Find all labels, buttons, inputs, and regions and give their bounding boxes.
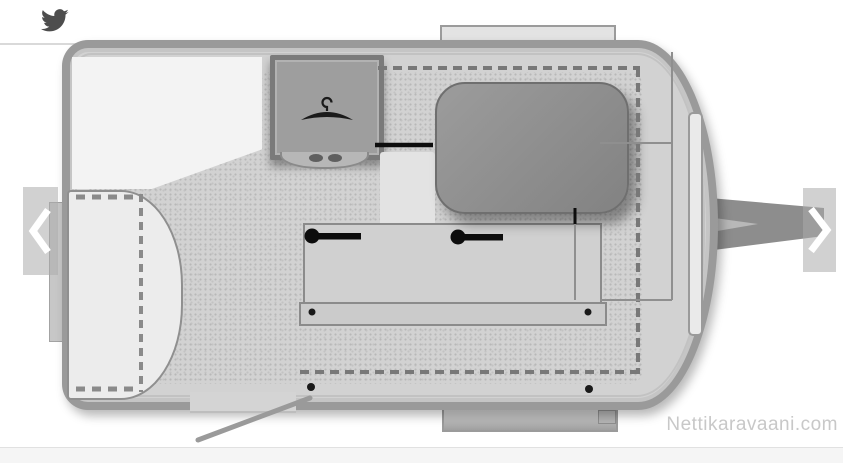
watermark: Nettikaravaani.com bbox=[598, 414, 838, 436]
door-opening bbox=[190, 392, 296, 413]
twitter-share-button[interactable] bbox=[24, 0, 84, 42]
bench-front-panel bbox=[299, 302, 607, 326]
next-image-button[interactable] bbox=[803, 188, 836, 272]
chevron-right-icon bbox=[803, 188, 836, 272]
image-gallery-page: Nettikaravaani.com bbox=[0, 0, 843, 463]
twitter-bird-icon bbox=[39, 9, 69, 34]
clothes-hanger-icon bbox=[296, 91, 358, 125]
side-unit bbox=[67, 190, 183, 400]
kitchen-counter bbox=[380, 152, 435, 234]
dinette-table bbox=[435, 82, 629, 214]
page-footer-strip bbox=[0, 447, 843, 463]
prev-image-button[interactable] bbox=[23, 187, 58, 275]
bench-seat bbox=[303, 223, 602, 306]
caravan-floorplan-image bbox=[62, 40, 718, 410]
front-window-strip bbox=[688, 112, 703, 336]
chevron-left-icon bbox=[23, 187, 58, 275]
wardrobe bbox=[270, 55, 384, 160]
